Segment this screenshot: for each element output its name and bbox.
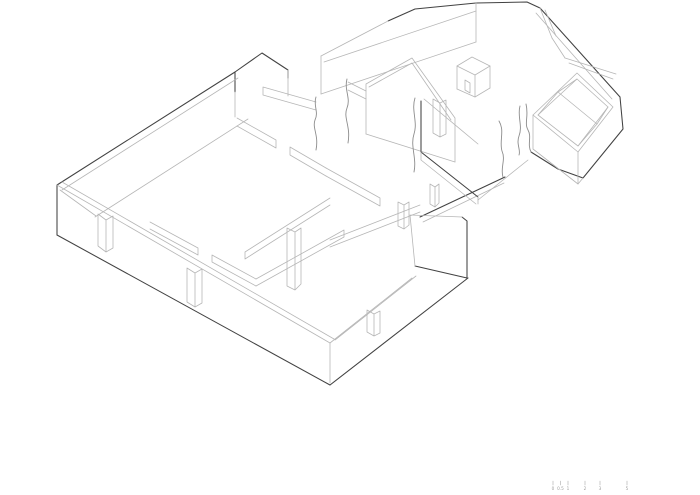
break-line [499,121,503,177]
right-wing-dark [421,97,623,197]
break-line [526,104,531,152]
wall-break-lines [314,79,531,177]
main-building-outline [57,53,505,385]
scale-bar: 0 0.5 1 2 3 5 [552,481,629,491]
main-building-openings [98,184,439,336]
axonometric-drawing: 0 0.5 1 2 3 5 [0,0,700,495]
door-opening [287,228,301,290]
window-opening [398,202,409,229]
break-line [413,98,416,172]
main-building-partitions [150,118,420,286]
scale-bar-labels: 0 0.5 1 2 3 5 [552,486,629,491]
break-line [346,79,349,143]
scale-label-2: 2 [584,486,587,491]
window-opening [367,310,380,336]
break-line [518,106,520,155]
scale-bar-ticks [553,481,627,485]
window-opening [187,268,202,307]
door-opening [98,214,113,252]
scale-label-05: 0.5 [557,486,564,491]
scale-label-1: 1 [567,486,570,491]
break-line [314,97,317,150]
scale-label-0: 0 [552,486,555,491]
main-building-walls [57,70,504,383]
scale-label-3: 3 [599,486,602,491]
page: 0 0.5 1 2 3 5 [0,0,700,495]
scale-label-5: 5 [626,486,629,491]
window-opening [430,184,439,207]
middle-wing-dark [388,2,620,97]
